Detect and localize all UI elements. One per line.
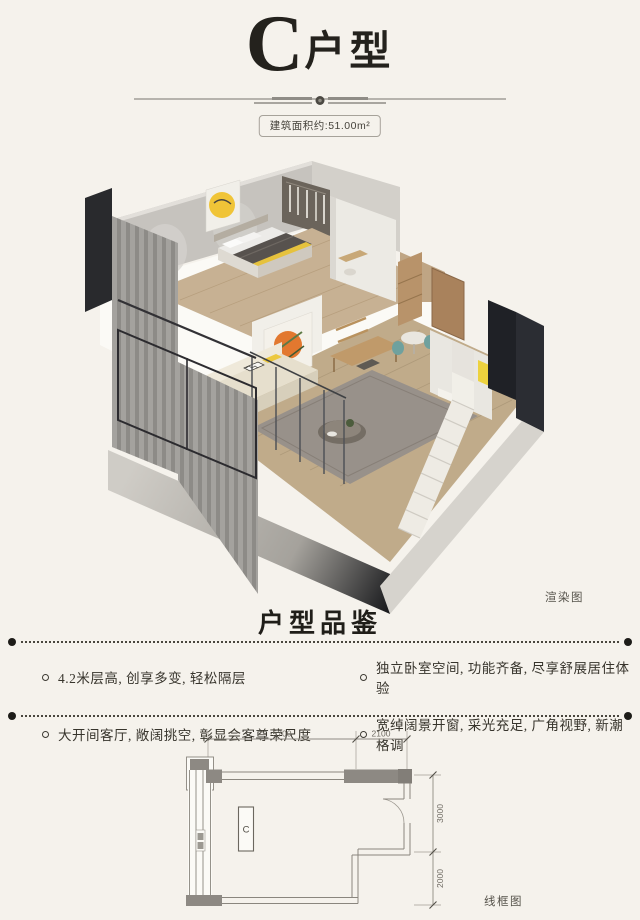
- dotted-rule-bottom: [8, 711, 632, 720]
- apartment-3d-render: [70, 150, 570, 615]
- divider-bar-left: [272, 97, 312, 100]
- area-badge: 建筑面积约:51.00m²: [259, 115, 381, 137]
- divider-rosette-icon: [316, 96, 325, 105]
- dimension-label-2000: 2000: [435, 869, 445, 888]
- divider-bar-right-offset: [328, 102, 386, 104]
- floorplan-poster-page: C 户型 建筑面积约:51.00m²: [0, 0, 640, 920]
- dimension-label-3000: 3000: [435, 804, 445, 823]
- rule-dotted-line: [21, 715, 619, 717]
- plan-unit-label: C: [239, 807, 254, 851]
- page-title: C 户型: [0, 8, 640, 82]
- dimension-label-2100: 2100: [372, 729, 391, 739]
- rule-end-dot-icon: [624, 638, 632, 646]
- dotted-rule-top: [8, 637, 632, 646]
- ornament-divider: [134, 95, 506, 107]
- bullet-icon: [42, 674, 49, 681]
- rule-dotted-line: [21, 641, 619, 643]
- window-code-marker: [196, 830, 205, 851]
- rule-end-dot-icon: [8, 712, 16, 720]
- feature-text: 4.2米层高, 创享多变, 轻松隔层: [58, 667, 246, 687]
- feature-item: 独立卧室空间, 功能齐备, 尽享舒展居住体验: [360, 657, 632, 697]
- plan-caption: 线框图: [484, 893, 523, 909]
- wireframe-floor-plan: 5700 2100 3000 2000: [178, 722, 488, 918]
- rule-end-dot-icon: [624, 712, 632, 720]
- dimension-label-5700: 5700: [273, 729, 292, 739]
- plan-unit-letter: C: [243, 825, 250, 836]
- bullet-icon: [360, 674, 367, 681]
- title-suffix: 户型: [304, 17, 394, 82]
- exterior-wall-left: [85, 188, 112, 312]
- feature-text: 独立卧室空间, 功能齐备, 尽享舒展居住体验: [376, 657, 632, 697]
- feature-item: 4.2米层高, 创享多变, 轻松隔层: [42, 657, 360, 697]
- section-heading: 户型品鉴: [0, 603, 640, 640]
- rule-end-dot-icon: [8, 638, 16, 646]
- divider-bar-left-offset: [254, 102, 312, 104]
- plan-walls: [186, 757, 412, 906]
- bullet-icon: [42, 731, 49, 738]
- title-initial-letter: C: [246, 8, 305, 82]
- door-swing: [383, 799, 404, 823]
- divider-bar-right: [328, 97, 368, 100]
